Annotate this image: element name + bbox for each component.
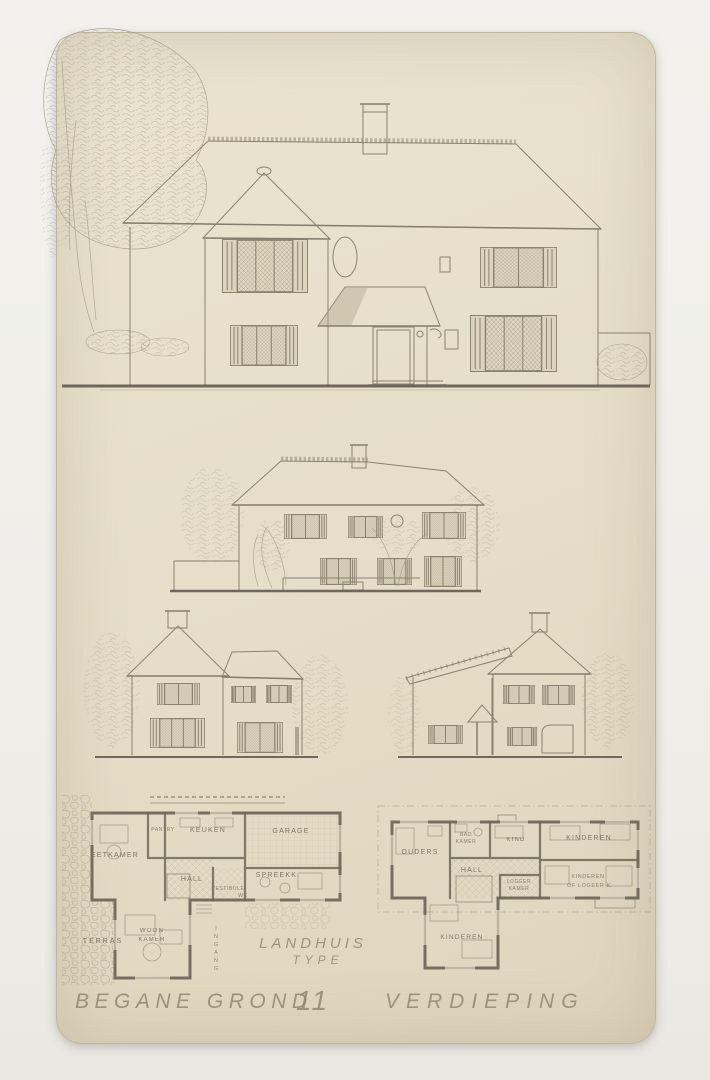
label-eetkamer: EETKAMER	[91, 852, 139, 859]
label-woonkamer-2: KAMER	[138, 937, 165, 943]
label-ouders: OUDERS	[401, 849, 438, 856]
side-elevation-left	[84, 611, 348, 757]
window-drawing	[237, 722, 283, 752]
label-logeer-2: KAMER	[509, 886, 530, 892]
label-keuken: KEUKEN	[190, 827, 226, 834]
window-drawing	[542, 685, 575, 705]
label-hall-ff: HALL	[461, 867, 483, 874]
front-door-drawing	[377, 330, 410, 384]
label-pantry: PANTRY	[151, 827, 174, 833]
label-hall-gf: HALL	[181, 876, 203, 883]
window-drawing	[230, 325, 297, 365]
label-logeer-1: LOGEER	[507, 879, 531, 885]
window-drawing	[222, 239, 307, 292]
caption-first-floor: VERDIEPING	[385, 990, 585, 1013]
window-drawing	[428, 725, 463, 744]
window-drawing	[231, 686, 256, 703]
label-wc: WC	[238, 893, 248, 899]
label-badkamer-1: BAD	[460, 832, 472, 838]
architectural-drawing: EETKAMER PANTRY KEUKEN GARAGE HALL SPREE…	[0, 0, 710, 1080]
window-drawing	[150, 718, 204, 748]
first-floor-plan: OUDERS BAD KAMER KIND KINDEREN HALL LOGE…	[378, 806, 650, 968]
label-spreekkamer: SPREEKK.	[256, 872, 301, 879]
project-title-line1: LANDHUIS	[259, 935, 367, 952]
project-title-line2: TYPE	[292, 953, 343, 967]
window-drawing	[424, 556, 462, 586]
window-drawing	[266, 685, 292, 703]
label-ingang: INGANG	[213, 926, 219, 974]
label-vestibule: VESTIBULE	[212, 886, 245, 892]
label-terras: TERRAS	[83, 938, 123, 945]
oval-window-drawing	[333, 237, 357, 277]
window-drawing	[503, 685, 535, 704]
label-badkamer-2: KAMER	[456, 839, 477, 845]
type-number: 11	[296, 985, 329, 1016]
label-kinderen-bottom: KINDEREN	[440, 934, 483, 941]
label-woonkamer-1: WOON	[140, 928, 164, 934]
front-elevation	[40, 29, 650, 390]
label-kinderen-of-2: OF LOGEER K.	[567, 883, 613, 889]
window-drawing	[157, 683, 200, 705]
side-elevation-right	[388, 613, 634, 757]
window-drawing	[284, 514, 327, 539]
window-drawing	[320, 558, 357, 585]
label-garage: GARAGE	[272, 828, 309, 835]
rear-elevation	[170, 445, 500, 591]
sheet-captions: LANDHUIS TYPE BEGANE GROND 11 VERDIEPING	[75, 935, 585, 1016]
label-kinderen-top: KINDEREN	[566, 835, 612, 842]
window-drawing	[377, 558, 412, 585]
label-kinderen-of-1: KINDEREN	[571, 874, 604, 880]
window-drawing	[507, 727, 537, 746]
scanned-drawing: EETKAMER PANTRY KEUKEN GARAGE HALL SPREE…	[0, 0, 710, 1080]
window-drawing	[422, 512, 466, 539]
window-drawing	[480, 247, 556, 287]
caption-ground-floor: BEGANE GROND	[75, 990, 313, 1013]
side-door-drawing	[542, 725, 573, 753]
window-drawing	[470, 315, 556, 371]
label-kind: KIND	[506, 837, 525, 843]
